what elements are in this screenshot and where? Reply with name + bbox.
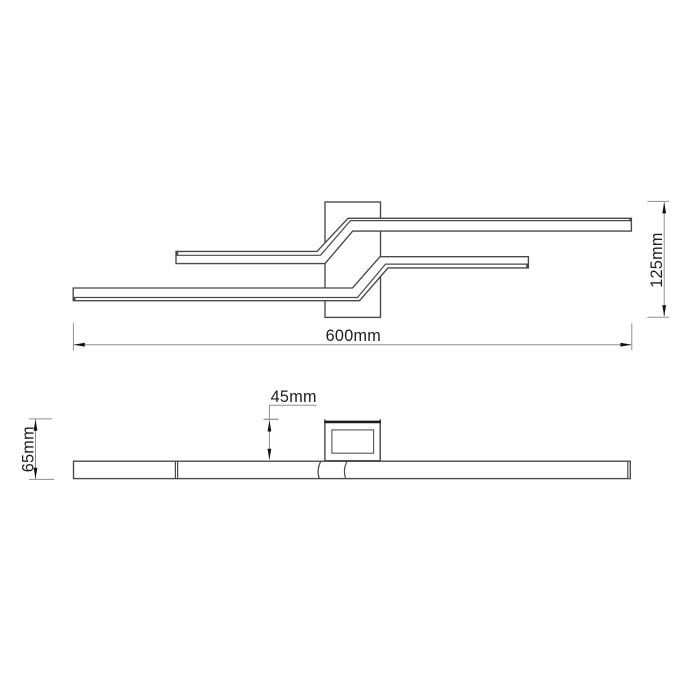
svg-text:600mm: 600mm xyxy=(326,327,381,345)
svg-text:125mm: 125mm xyxy=(648,232,666,287)
svg-text:45mm: 45mm xyxy=(271,388,317,406)
svg-text:65mm: 65mm xyxy=(20,426,38,472)
